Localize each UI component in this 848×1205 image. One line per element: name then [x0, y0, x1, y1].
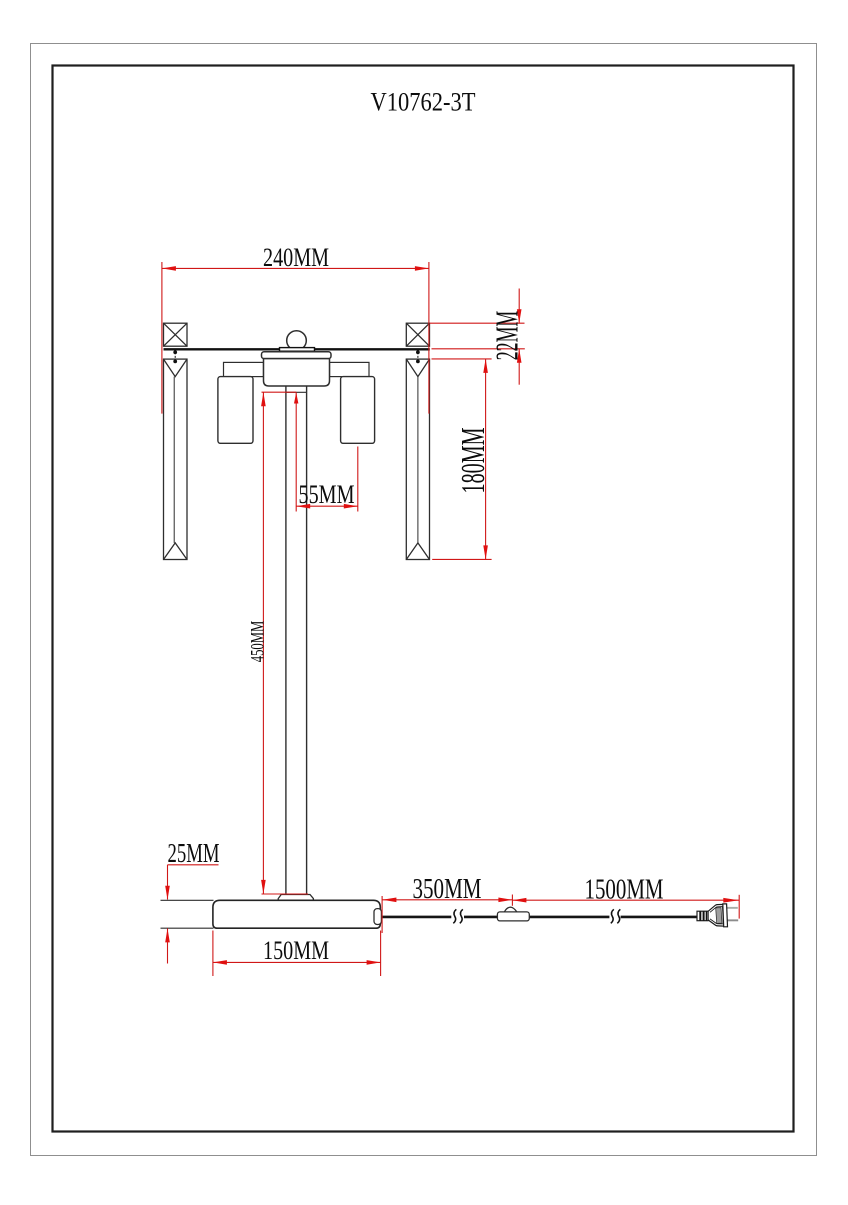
- svg-text:25MM: 25MM: [168, 838, 220, 868]
- svg-text:22MM: 22MM: [489, 311, 525, 361]
- svg-text:450MM: 450MM: [248, 621, 268, 663]
- svg-text:V10762-3T: V10762-3T: [371, 88, 476, 117]
- svg-text:240MM: 240MM: [263, 243, 329, 272]
- svg-text:1500MM: 1500MM: [585, 874, 664, 905]
- svg-text:150MM: 150MM: [263, 936, 329, 965]
- svg-text:180MM: 180MM: [455, 428, 492, 494]
- svg-text:350MM: 350MM: [413, 874, 482, 905]
- svg-text:55MM: 55MM: [299, 480, 355, 509]
